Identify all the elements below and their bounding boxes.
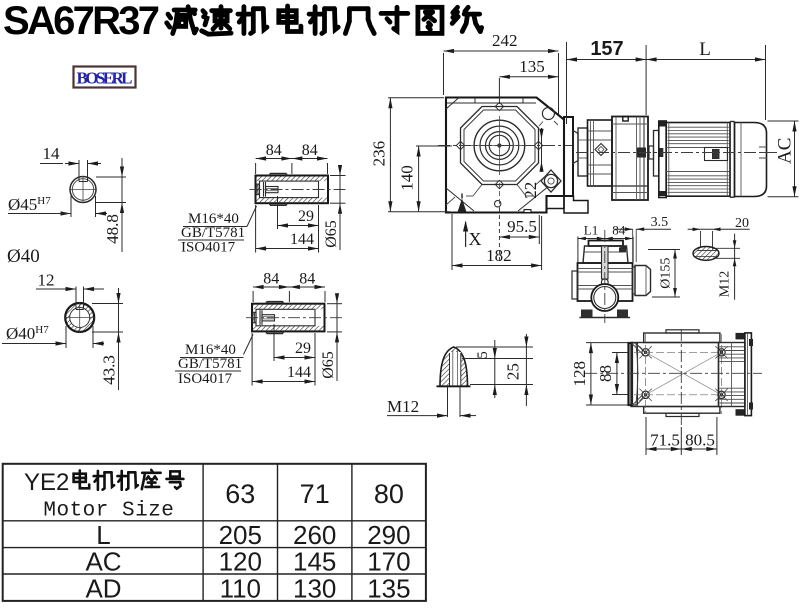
svg-text:AC: AC [775,138,796,164]
svg-text:X: X [469,229,482,249]
svg-text:88: 88 [596,365,615,382]
svg-text:M12: M12 [387,397,419,416]
svg-text:BOSERL: BOSERL [77,69,133,88]
svg-text:12: 12 [38,271,55,290]
svg-text:84: 84 [266,142,282,159]
svg-text:AD: AD [85,573,121,603]
svg-text:48.8: 48.8 [103,214,122,244]
svg-text:145: 145 [293,546,336,576]
svg-text:SA67R37: SA67R37 [3,0,160,43]
svg-text:Ø65: Ø65 [320,351,337,379]
svg-text:135: 135 [519,57,545,76]
svg-text:L: L [699,39,711,60]
svg-text:95.5: 95.5 [507,217,537,236]
svg-text:236: 236 [370,141,389,167]
svg-text:ISO4017: ISO4017 [178,371,233,387]
svg-text:YE2: YE2 [24,469,69,496]
svg-text:84: 84 [612,223,626,238]
svg-text:144: 144 [290,231,314,248]
svg-text:71: 71 [300,479,330,509]
svg-text:84: 84 [299,271,315,288]
svg-text:Ø40: Ø40 [7,246,40,267]
svg-text:Ø65: Ø65 [323,220,340,248]
svg-text:14: 14 [43,144,61,163]
svg-text:Ø155: Ø155 [659,258,674,289]
svg-text:84: 84 [263,271,279,288]
svg-text:29: 29 [298,208,314,225]
svg-text:120: 120 [219,546,262,576]
svg-text:63: 63 [225,479,255,509]
svg-text:140: 140 [398,165,417,191]
svg-text:71.5: 71.5 [650,431,680,450]
svg-text:22: 22 [521,182,540,199]
svg-text:25: 25 [504,363,523,380]
svg-text:M12: M12 [718,271,733,297]
svg-text:29: 29 [295,340,311,357]
svg-text:130: 130 [293,573,336,603]
svg-text:135: 135 [367,573,410,603]
svg-text:84: 84 [302,142,318,159]
svg-text:5: 5 [475,351,491,359]
svg-text:80.5: 80.5 [685,431,715,450]
svg-text:170: 170 [367,546,410,576]
svg-text:20: 20 [735,216,749,231]
svg-text:80: 80 [374,479,404,509]
svg-text:AC: AC [85,546,121,576]
svg-text:182: 182 [486,246,512,265]
svg-text:43.3: 43.3 [100,355,119,385]
svg-text:GB/T5781: GB/T5781 [178,356,242,372]
svg-text:144: 144 [287,364,311,381]
svg-text:157: 157 [590,38,623,60]
svg-text:3.5: 3.5 [651,215,669,230]
svg-text:242: 242 [492,31,518,50]
svg-text:110: 110 [220,573,261,603]
svg-text:L1: L1 [584,223,598,238]
svg-text:ISO4017: ISO4017 [181,240,236,256]
svg-text:128: 128 [570,361,589,387]
